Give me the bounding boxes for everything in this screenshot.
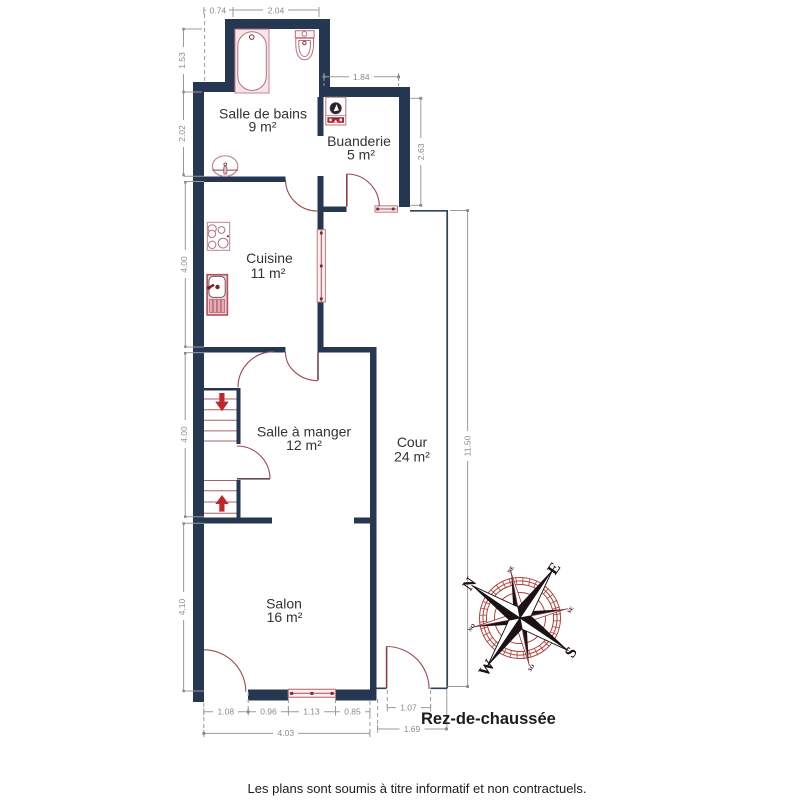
svg-text:4.00: 4.00 xyxy=(179,426,189,443)
svg-text:24 m²: 24 m² xyxy=(394,449,430,465)
svg-text:4.00: 4.00 xyxy=(179,256,189,273)
svg-text:4.03: 4.03 xyxy=(278,728,295,738)
svg-text:1.08: 1.08 xyxy=(218,707,235,717)
svg-text:11.50: 11.50 xyxy=(463,435,473,456)
svg-text:0.74: 0.74 xyxy=(210,6,227,16)
svg-text:1.53: 1.53 xyxy=(177,52,187,69)
svg-text:2.04: 2.04 xyxy=(268,6,285,16)
svg-text:Rez-de-chaussée: Rez-de-chaussée xyxy=(421,710,556,728)
svg-text:2.63: 2.63 xyxy=(416,143,426,160)
svg-text:16 m²: 16 m² xyxy=(267,609,303,625)
svg-text:Les plans sont soumis à titre: Les plans sont soumis à titre informatif… xyxy=(248,781,587,796)
svg-text:4.10: 4.10 xyxy=(177,598,187,615)
svg-text:1.69: 1.69 xyxy=(404,724,421,734)
svg-text:9 m²: 9 m² xyxy=(249,119,277,135)
svg-text:11 m²: 11 m² xyxy=(251,265,286,281)
svg-text:2.02: 2.02 xyxy=(177,125,187,142)
svg-text:12 m²: 12 m² xyxy=(286,437,322,453)
svg-text:0.85: 0.85 xyxy=(344,707,361,717)
svg-text:Cuisine: Cuisine xyxy=(246,250,293,266)
svg-text:5 m²: 5 m² xyxy=(347,147,375,163)
svg-text:1.84: 1.84 xyxy=(353,72,370,82)
svg-text:0.96: 0.96 xyxy=(260,707,277,717)
svg-text:1.13: 1.13 xyxy=(303,707,320,717)
svg-text:1.07: 1.07 xyxy=(400,702,417,712)
